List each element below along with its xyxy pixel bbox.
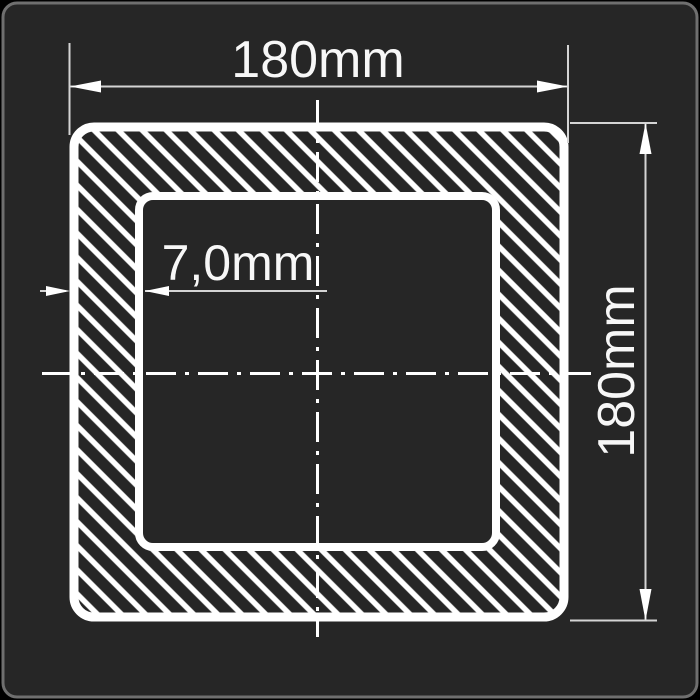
height-dim-label: 180mm [588, 284, 646, 457]
wall-dim-label: 7,0mm [162, 235, 315, 291]
width-dim-label: 180mm [231, 31, 404, 89]
drawing-canvas: 180mm 180mm 7,0mm [0, 0, 700, 700]
section-drawing: 180mm 180mm 7,0mm [0, 0, 700, 700]
